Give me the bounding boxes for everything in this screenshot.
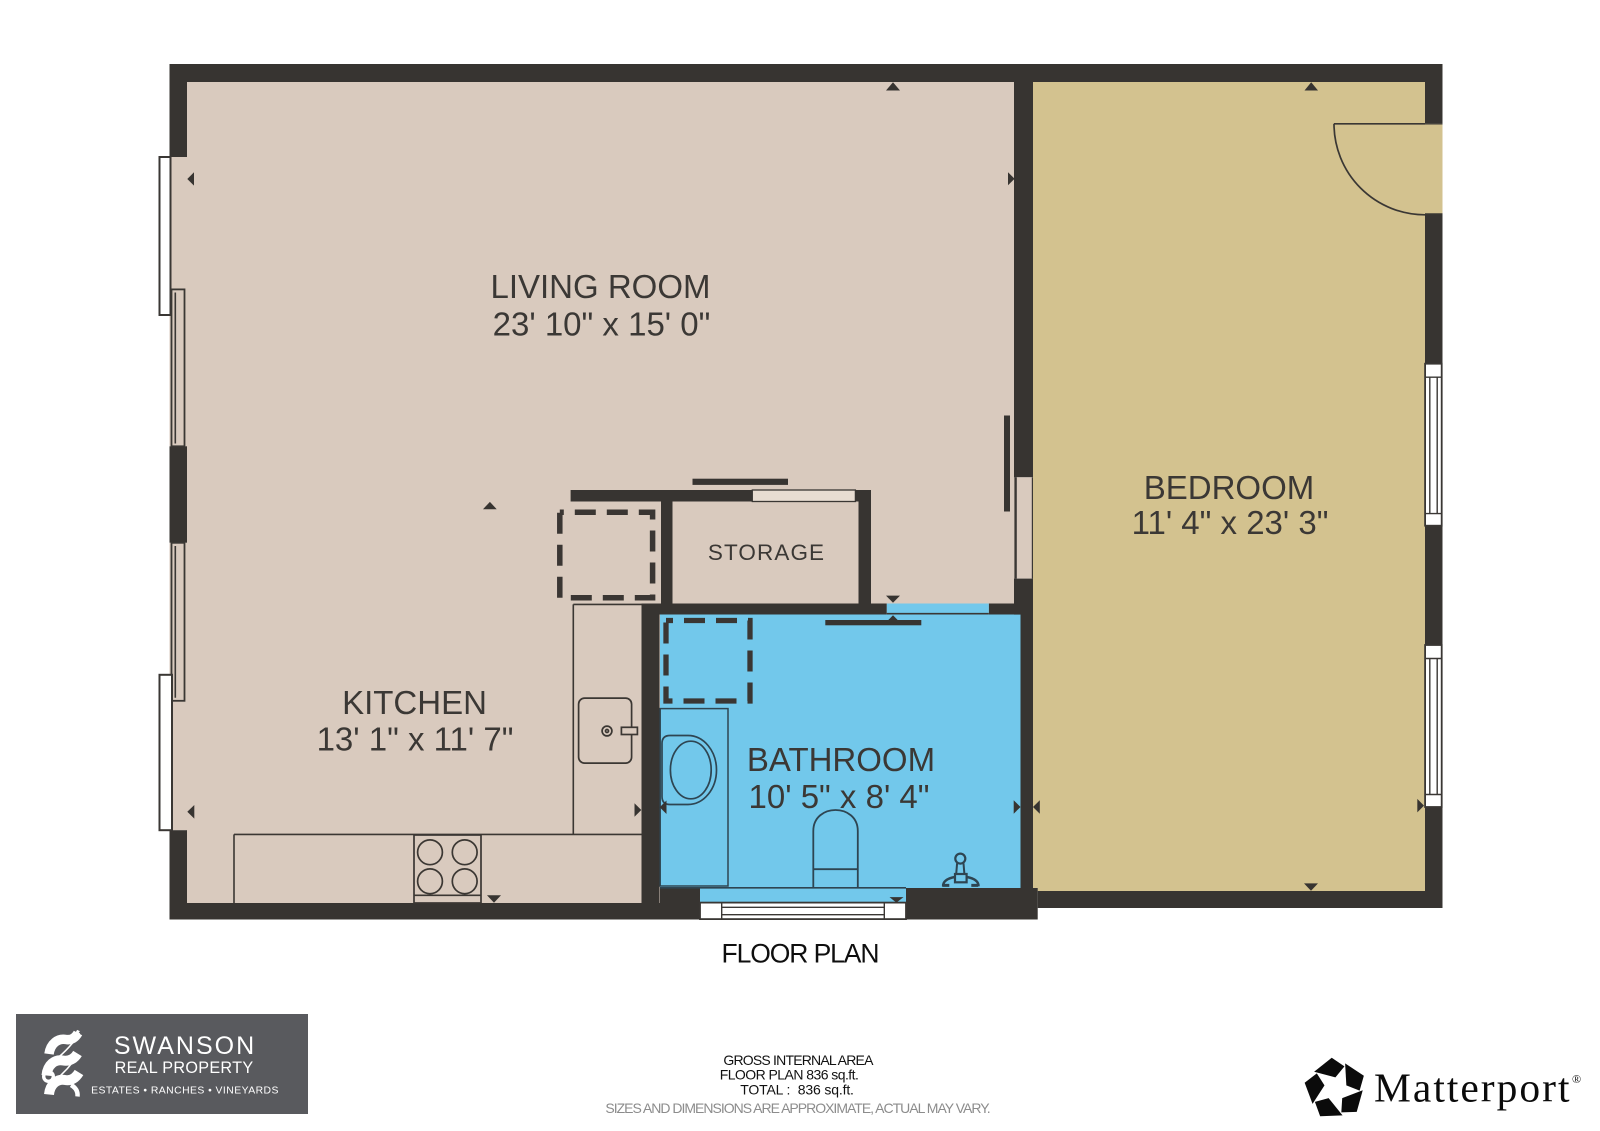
svg-text:ESTATES • RANCHES • VINEYARDS: ESTATES • RANCHES • VINEYARDS xyxy=(91,1086,279,1097)
svg-text:REAL PROPERTY: REAL PROPERTY xyxy=(115,1059,254,1077)
svg-text:13' 1" x 11' 7": 13' 1" x 11' 7" xyxy=(317,721,514,758)
svg-text:SWANSON: SWANSON xyxy=(114,1032,256,1060)
svg-text:STORAGE: STORAGE xyxy=(708,540,825,565)
svg-text:®: ® xyxy=(1572,1072,1581,1086)
svg-text:SIZES AND DIMENSIONS ARE APPRO: SIZES AND DIMENSIONS ARE APPROXIMATE, AC… xyxy=(605,1100,990,1116)
svg-text:11' 4" x 23' 3": 11' 4" x 23' 3" xyxy=(1132,504,1329,541)
svg-text:LIVING ROOM: LIVING ROOM xyxy=(490,268,710,305)
svg-text:FLOOR PLAN 836 sq.ft.: FLOOR PLAN 836 sq.ft. xyxy=(720,1067,859,1083)
svg-text:KITCHEN: KITCHEN xyxy=(342,684,487,721)
svg-text:Matterport: Matterport xyxy=(1374,1065,1571,1111)
svg-text:BATHROOM: BATHROOM xyxy=(747,741,935,778)
svg-text:23' 10" x 15' 0": 23' 10" x 15' 0" xyxy=(493,306,711,343)
svg-text:FLOOR PLAN: FLOOR PLAN xyxy=(722,939,879,969)
svg-text:BEDROOM: BEDROOM xyxy=(1144,469,1315,506)
svg-text:GROSS INTERNAL AREA: GROSS INTERNAL AREA xyxy=(723,1052,874,1068)
svg-text:10' 5" x 8' 4": 10' 5" x 8' 4" xyxy=(749,778,930,815)
svg-text:TOTAL : 836 sq.ft.: TOTAL : 836 sq.ft. xyxy=(740,1082,854,1098)
